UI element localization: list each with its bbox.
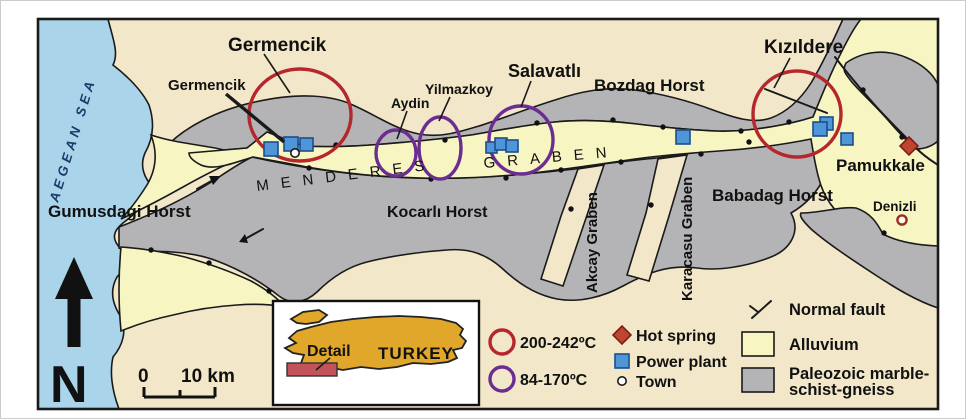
scale-zero-label: 0 — [138, 366, 149, 387]
north-label: N — [50, 356, 88, 414]
denizli-label: Denizli — [873, 199, 917, 214]
low-temp-label: 84-170ºC — [520, 372, 588, 389]
normal-fault-label: Normal fault — [789, 301, 886, 319]
salavatli-field-label: Salavatlı — [508, 61, 581, 81]
yilmazkoy-label: Yilmazkoy — [425, 81, 493, 97]
kocarli-horst-label: Kocarlı Horst — [387, 204, 488, 221]
map-svg: AEGEAN SEA Germencik Germencik Aydin Yil… — [1, 1, 966, 419]
fault-ball — [610, 117, 615, 122]
germencik-field-label: Germencik — [228, 35, 327, 56]
detail-label: Detail — [307, 343, 351, 360]
fault-ball — [881, 230, 886, 235]
aydin-label: Aydin — [391, 95, 429, 111]
alluvium-swatch — [742, 332, 774, 356]
detail-area-rect — [287, 363, 337, 376]
bozdag-horst-label: Bozdag Horst — [594, 76, 705, 95]
fault-ball — [899, 134, 904, 139]
fault-ball — [206, 260, 211, 265]
power-plant-label: Power plant — [636, 354, 727, 371]
gumusdagi-horst-label: Gumusdagi Horst — [48, 202, 191, 221]
fault-ball — [648, 202, 653, 207]
high-temp-label: 200-242ºC — [520, 335, 597, 352]
fault-ball — [568, 206, 573, 211]
fault-ball — [660, 124, 665, 129]
hot-spring-label: Hot spring — [636, 328, 716, 345]
fault-ball — [738, 128, 743, 133]
power-plant-legend-icon — [615, 354, 629, 368]
paleozoic-swatch — [742, 368, 774, 392]
power-plant-icon — [264, 142, 278, 156]
fault-ball — [503, 175, 508, 180]
turkey-label: TURKEY — [378, 344, 454, 363]
alluvium-label: Alluvium — [789, 336, 859, 354]
power-plant-icon — [506, 140, 518, 152]
fault-ball — [534, 120, 539, 125]
germencik-town-icon — [291, 149, 299, 157]
pamukkale-label: Pamukkale — [836, 156, 925, 175]
fault-ball — [306, 165, 311, 170]
town-label: Town — [636, 374, 677, 391]
power-plant-icon — [841, 133, 853, 145]
fault-ball — [148, 247, 153, 252]
paleozoic-label-line2: schist-gneiss — [789, 381, 894, 399]
babadag-horst-label: Babadag Horst — [712, 186, 833, 205]
karacasu-graben-label: Karacasu Graben — [679, 177, 696, 301]
power-plant-icon — [300, 138, 313, 151]
fault-ball — [746, 139, 751, 144]
north-arrow-shaft — [68, 297, 81, 347]
germencik-town-label: Germencik — [168, 77, 246, 94]
town-legend-icon — [618, 377, 626, 385]
fault-ball — [266, 288, 271, 293]
turkey-inset: Detail TURKEY — [273, 301, 479, 405]
fault-ball — [558, 167, 563, 172]
scale-ten-km-label: 10 km — [181, 366, 235, 387]
denizli-town-icon — [897, 215, 906, 224]
fault-ball — [698, 151, 703, 156]
fault-ball — [860, 87, 865, 92]
kizildere-field-label: Kızıldere — [764, 37, 843, 58]
figure-container: AEGEAN SEA Germencik Germencik Aydin Yil… — [0, 0, 966, 419]
fault-ball — [786, 119, 791, 124]
fault-ball — [442, 137, 447, 142]
power-plant-icon — [813, 122, 827, 136]
akcay-graben-label: Akcay Graben — [584, 192, 601, 293]
power-plant-icon — [676, 130, 690, 144]
